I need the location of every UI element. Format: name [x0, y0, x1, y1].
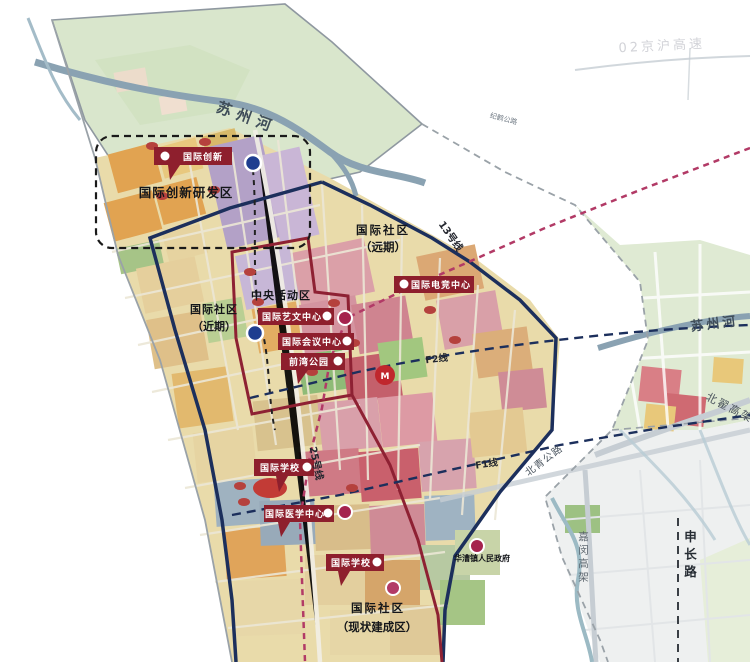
metro-m-mark: M — [381, 372, 390, 382]
crimson-station-icon — [338, 311, 352, 325]
badge-dot-icon — [343, 337, 352, 346]
label-community-far-1: 国际社区 — [356, 223, 410, 237]
badge-label: 国际学校 — [331, 557, 371, 569]
badge-esports-center: 国际电竞中心 — [394, 276, 474, 293]
planning-map-screenshot: M 国际创新 国际电竞中心 国际艺文中心 国际会议中心 — [0, 0, 750, 662]
badge-label: 国际医学中心 — [265, 508, 325, 520]
label-community-near-2: （近期） — [192, 319, 236, 333]
label-innovation-district: 国际创新研发区 — [139, 185, 234, 200]
badge-conference-center: 国际会议中心 — [278, 333, 354, 350]
label-cbd: 中央活动区 — [251, 288, 311, 302]
blue-station-icon — [245, 155, 261, 171]
badge-label: 国际学校 — [260, 462, 300, 474]
label-community-far-2: （远期） — [360, 240, 406, 254]
badge-dot-icon — [400, 280, 409, 289]
badge-dot-icon — [323, 312, 332, 321]
label-community-near-1: 国际社区 — [190, 302, 238, 316]
label-community-built-2: （现状建成区） — [337, 620, 418, 634]
badge-dot-icon — [334, 357, 343, 366]
badge-label: 国际会议中心 — [282, 336, 342, 348]
crimson-station-icon — [470, 539, 484, 553]
badge-dot-icon — [324, 509, 333, 518]
blue-station-icon — [247, 325, 263, 341]
badge-label: 国际电竞中心 — [411, 279, 471, 291]
badge-label: 国际艺文中心 — [262, 311, 322, 323]
badge-label: 国际创新 — [183, 151, 223, 163]
badge-label: 前湾公园 — [289, 356, 329, 368]
label-government: 华漕镇人民政府 — [454, 553, 510, 563]
label-community-built-1: 国际社区 — [351, 601, 405, 615]
crimson-station-icon — [386, 581, 400, 595]
badge-arts-center: 国际艺文中心 — [258, 308, 334, 325]
planning-map: M 国际创新 国际电竞中心 国际艺文中心 国际会议中心 — [0, 0, 750, 662]
label-jiamin-elevated: 嘉闵高架 — [576, 531, 591, 585]
badge-dot-icon — [161, 152, 170, 161]
label-shenchang-road: 申长路 — [680, 530, 699, 583]
crimson-station-icon — [338, 505, 352, 519]
badge-dot-icon — [373, 558, 382, 567]
